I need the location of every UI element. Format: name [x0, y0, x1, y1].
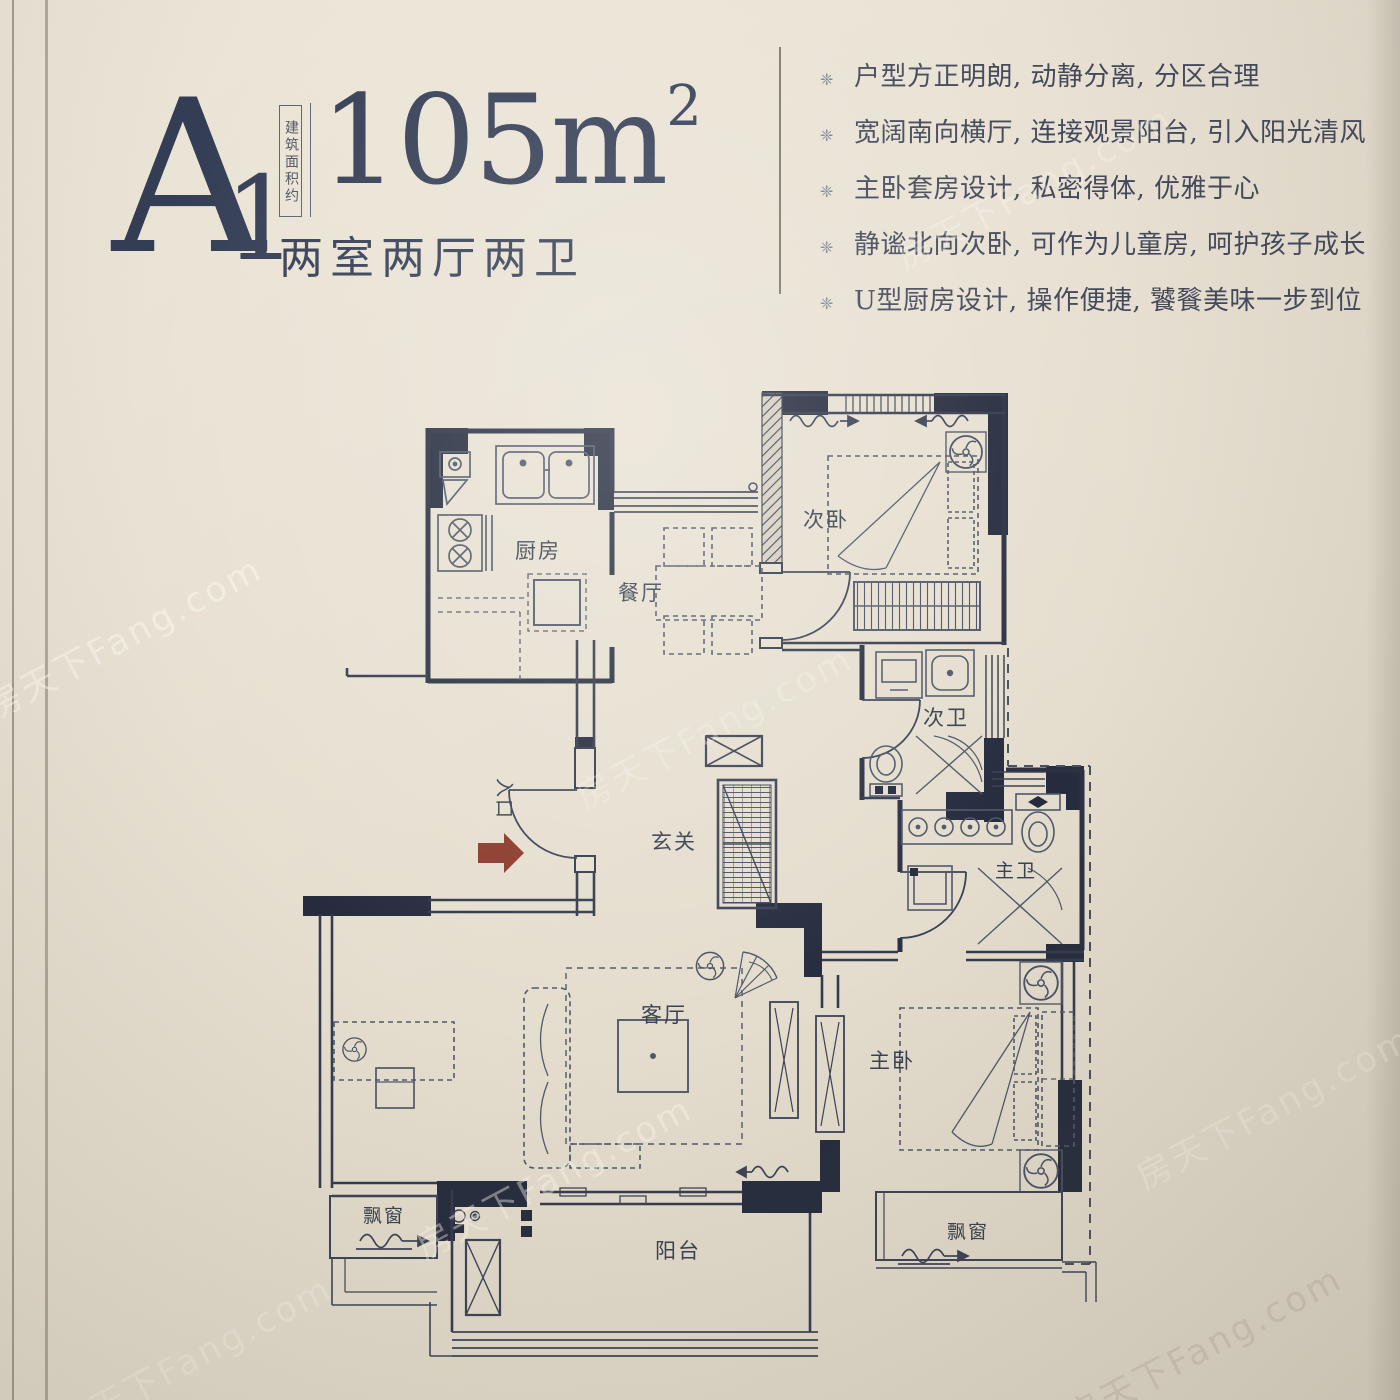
label-bay-window-right: 飘窗: [947, 1221, 989, 1243]
desk-fan-icon: [343, 1038, 366, 1061]
feature-text: 主卧套房设计, 私密得体, 优雅于心: [854, 168, 1260, 205]
nightstand-fan-icon: [1024, 966, 1058, 1000]
flower-bullet-icon: ❈: [820, 238, 854, 257]
label-master-bedroom: 主卧: [869, 1049, 915, 1073]
label-bay-window-left: 飘窗: [363, 1205, 405, 1227]
area-exponent: 2: [666, 74, 702, 139]
label-second-bath: 次卫: [923, 706, 969, 730]
area-number: 105m: [320, 69, 666, 213]
feature-text: U型厨房设计, 操作便捷, 饕餮美味一步到位: [854, 280, 1362, 317]
flower-bullet-icon: ❈: [820, 294, 854, 313]
feature-text: 宽阔南向横厅, 连接观景阳台, 引入阳光清风: [854, 112, 1366, 149]
floor-plan: 厨房 餐厅 次卧 次卫 玄关 主卫 客厅 主卧 飘窗 飘窗 阳台 入口: [285, 382, 1115, 1367]
flower-bullet-icon: ❈: [820, 182, 854, 201]
watermark: 房天下Fang.com: [0, 541, 271, 730]
master-bedroom-furniture: [900, 962, 1074, 1192]
label-foyer: 玄关: [651, 830, 697, 854]
feature-item: ❈ 户型方正明朗, 动静分离, 分区合理: [820, 56, 1386, 93]
label-master-bath: 主卫: [995, 860, 1037, 882]
page-edge-line: [45, 0, 48, 1400]
page-edge-line: [12, 0, 14, 1400]
plant-icon: [696, 952, 723, 979]
label-living: 客厅: [641, 1003, 687, 1027]
label-dining: 餐厅: [618, 581, 664, 605]
title-divider: [310, 103, 311, 217]
living-furniture: [334, 952, 777, 1168]
watermark: 房天下Fang.com: [1126, 1011, 1400, 1200]
flower-bullet-icon: ❈: [820, 70, 854, 89]
dining-furniture: [656, 528, 762, 654]
area-note-vertical: 建筑面积约: [279, 105, 302, 217]
layout-summary: 两室两厅两卫: [279, 222, 585, 286]
entry-arrow: [478, 833, 524, 873]
ceiling-fan-icon: [950, 436, 982, 468]
label-entrance: 入口: [493, 778, 515, 820]
feature-list: ❈ 户型方正明朗, 动静分离, 分区合理 ❈ 宽阔南向横厅, 连接观景阳台, 引…: [820, 56, 1386, 336]
feature-item: ❈ U型厨房设计, 操作便捷, 饕餮美味一步到位: [820, 280, 1386, 317]
feature-item: ❈ 主卧套房设计, 私密得体, 优雅于心: [820, 168, 1386, 205]
flower-bullet-icon: ❈: [820, 126, 854, 145]
label-kitchen: 厨房: [515, 539, 561, 563]
feature-text: 户型方正明朗, 动静分离, 分区合理: [854, 56, 1260, 93]
foyer-elements: [706, 736, 776, 908]
sliding-door-panels: [770, 1002, 844, 1132]
nightstand-fan-icon: [1024, 1154, 1058, 1188]
kitchen-fixtures: [438, 446, 594, 680]
hatched-wall: [762, 393, 782, 570]
features-divider: [779, 47, 781, 294]
feature-item: ❈ 静谧北向次卧, 可作为儿童房, 呵护孩子成长: [820, 224, 1386, 261]
feature-item: ❈ 宽阔南向横厅, 连接观景阳台, 引入阳光清风: [820, 112, 1386, 149]
brochure-page: A 1 建筑面积约 105m2 两室两厅两卫 ❈ 户型方正明朗, 动静分离, 分…: [0, 0, 1400, 1400]
area-value: 105m2: [320, 74, 702, 203]
label-balcony: 阳台: [655, 1239, 701, 1263]
label-second-bedroom: 次卧: [803, 508, 849, 532]
feature-text: 静谧北向次卧, 可作为儿童房, 呵护孩子成长: [854, 224, 1366, 261]
second-bedroom-furniture: [828, 432, 986, 630]
wall-blocks: [303, 391, 1084, 1241]
